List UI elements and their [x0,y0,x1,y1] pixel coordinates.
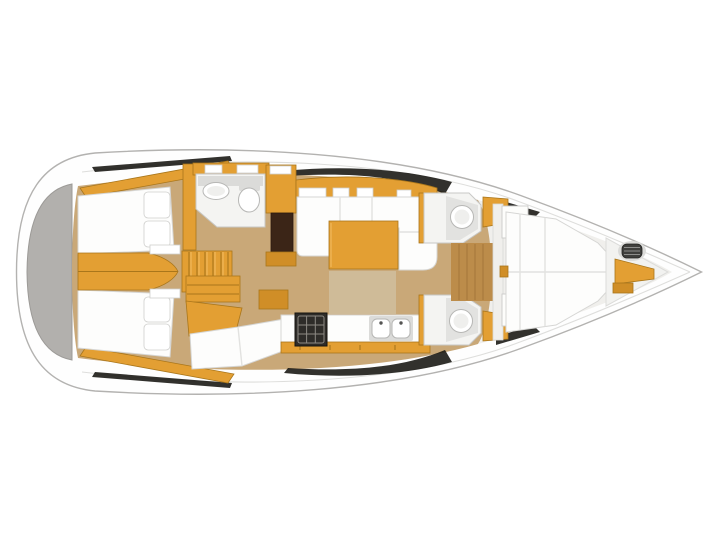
toilet [239,188,260,212]
saloon-table [329,221,398,269]
toilet-bowl [454,314,469,329]
faucet [379,321,382,324]
stove-top [295,313,327,346]
chart-table-dark [271,213,293,252]
pillow [144,221,170,247]
galley-lockers [186,276,240,302]
headrest-cushion [333,188,349,197]
saloon [296,177,437,270]
headrest-cushion [357,188,373,197]
galley-partition [259,290,288,309]
berth-corner [150,245,180,254]
toilet-bowl [455,210,470,225]
berth-step-wood [500,266,508,277]
pillow [144,192,170,218]
galley-sink [369,316,413,341]
corridor-wood-floor [451,243,493,301]
saloon-rug [329,271,396,314]
sink-basin [207,186,225,196]
bow-step-wood [613,283,633,293]
companionway-side-wall [183,164,196,250]
nav-shelf [266,252,296,266]
boat-floorplan-image [0,0,719,539]
deck-hatch [237,165,258,173]
pillow [144,324,170,350]
headrest-cushion [299,188,326,197]
berth-corner [150,289,180,298]
forward-corridor [451,243,493,301]
faucet [399,321,402,324]
deck-hatch [205,165,222,173]
deck-hatch [270,166,291,174]
pillow [144,297,170,322]
floorplan-svg [0,0,719,539]
galley-stove [295,313,327,346]
